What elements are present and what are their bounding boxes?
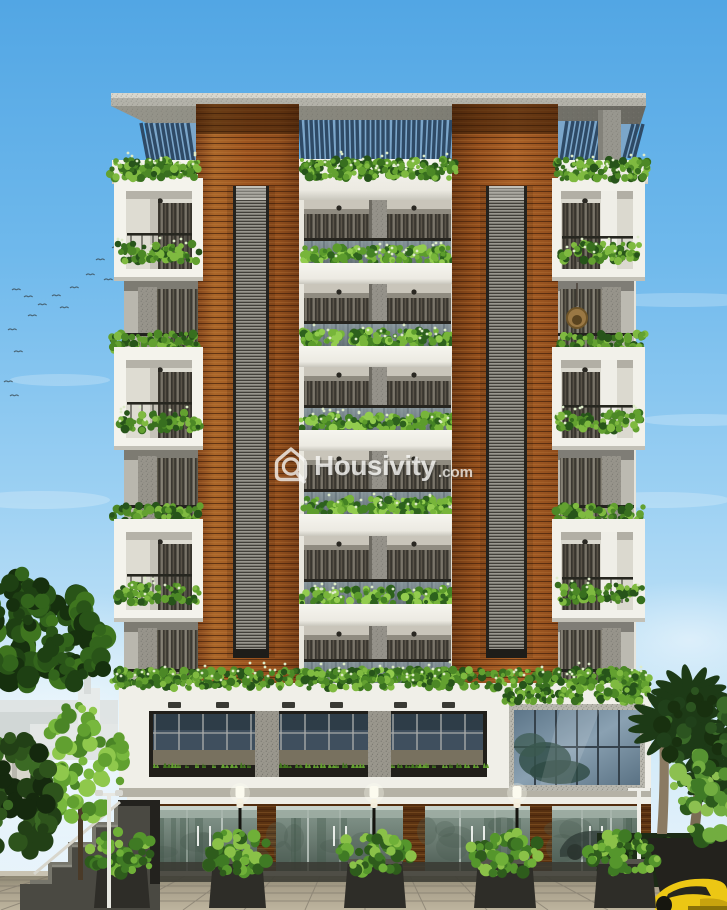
- svg-text:Housivity: Housivity: [314, 450, 436, 481]
- svg-text:.com: .com: [438, 464, 473, 481]
